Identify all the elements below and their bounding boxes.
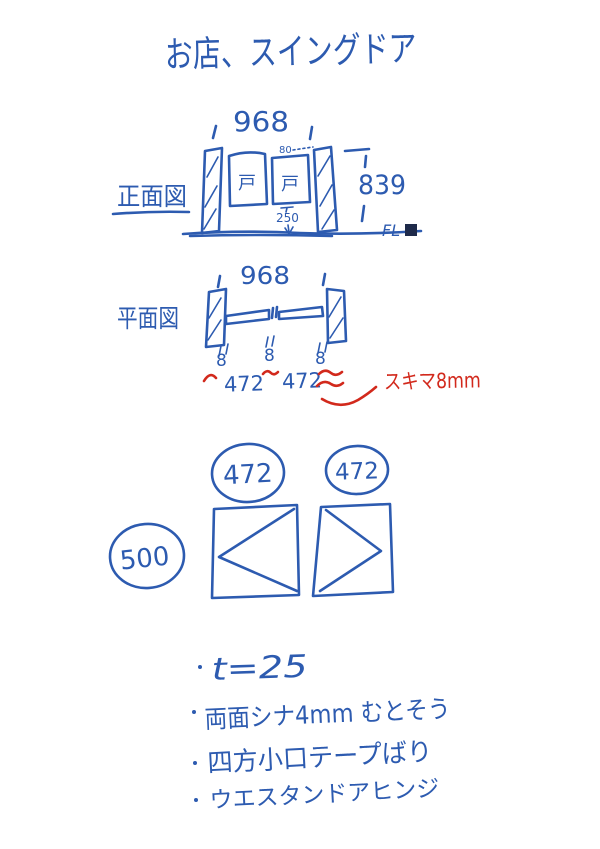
front-view-label-underline (113, 212, 189, 214)
swing-door-sketch: お店、スイングドア 正面図 968 戸 戸 80 250 839 F (0, 0, 600, 849)
front-height-dim-bottom-tick (362, 206, 364, 221)
front-left-door-label: 戸 (238, 173, 256, 194)
plan-view: 平面図 968 8 8 8 472 472 スキマ8mm (117, 261, 481, 405)
front-top-gap-dim: 80 (279, 145, 292, 156)
left-panel-chevron (219, 509, 297, 591)
plan-center-gap-ticks (272, 307, 277, 318)
front-height-dim-top-mark (345, 149, 369, 167)
floor-label: FL (382, 221, 400, 240)
front-width-dim: 968 (233, 105, 289, 138)
plan-gap-dim-right: 8 (315, 349, 326, 369)
note-thickness: t=25 (211, 649, 308, 688)
floor-line-overstroke (190, 235, 332, 236)
floor-marker-square (405, 224, 417, 236)
note-bullet-2 (192, 710, 196, 714)
front-left-jamb-hatch (204, 157, 218, 229)
left-panel-square (212, 505, 299, 598)
height-circle-value: 500 (118, 542, 171, 577)
plan-view-label: 平面図 (117, 304, 179, 333)
page-title: お店、スイングドア (164, 29, 417, 77)
plan-red-gap-note: スキマ8mm (384, 368, 481, 394)
front-right-jamb (314, 147, 337, 232)
notes-list: t=25 両面シナ4mm むとそう 四方小口テープばり ウエスタンドアヒンジ (192, 649, 451, 814)
plan-left-jamb-hatch (208, 298, 221, 340)
front-left-jamb (202, 148, 222, 233)
front-right-door-label: 戸 (281, 174, 299, 195)
red-swoosh-arrow (322, 387, 376, 405)
note-edge-tape: 四方小口テープばり (207, 737, 433, 779)
leaf-width-circle-left-value: 472 (222, 459, 273, 492)
plan-right-door-bar (279, 307, 323, 319)
note-bullet-4 (194, 798, 198, 802)
front-view-label: 正面図 (117, 182, 187, 211)
sketch-canvas: お店、スイングドア 正面図 968 戸 戸 80 250 839 F (0, 0, 600, 849)
front-height-dim: 839 (358, 170, 406, 201)
plan-gap-dim-center: 8 (264, 346, 275, 366)
plan-width-dim: 968 (240, 261, 290, 290)
front-view: 正面図 968 戸 戸 80 250 839 FL (113, 105, 421, 240)
front-bottom-clearance-dim: 250 (276, 211, 299, 225)
right-panel-chevron (320, 510, 381, 591)
note-bullet-1 (198, 665, 202, 669)
red-tilde-mark (263, 371, 278, 374)
plan-leaf-width-right: 472 (282, 368, 323, 393)
note-bullet-3 (193, 761, 197, 765)
red-caret-mark (204, 375, 216, 381)
front-top-gap-leader (293, 147, 313, 150)
leaf-width-circle-right-value: 472 (335, 458, 380, 486)
plan-left-door-bar (226, 310, 269, 324)
plan-gap-dim-left: 8 (216, 351, 227, 371)
plan-leaf-width-left: 472 (224, 371, 265, 396)
note-facing: 両面シナ4mm むとそう (204, 694, 451, 734)
plan-right-jamb-hatch (329, 297, 343, 338)
part-sketches: 472 472 500 (108, 442, 393, 598)
note-hinge: ウエスタンドアヒンジ (209, 776, 440, 814)
